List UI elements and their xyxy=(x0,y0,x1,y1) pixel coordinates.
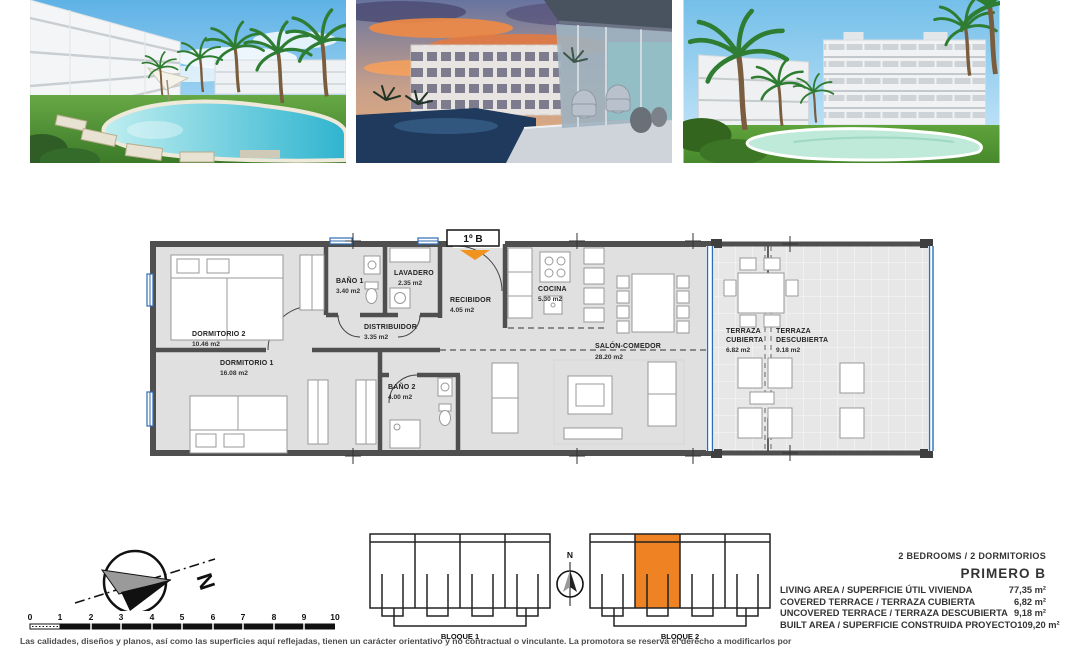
scale-bar-graphic xyxy=(30,624,335,630)
area-terraza-descubierta: 9.18 m2 xyxy=(776,347,801,354)
bloque2-footprint xyxy=(590,534,770,626)
spec-label: LIVING AREA / SUPERFICIE ÚTIL VIVIENDA xyxy=(780,585,972,597)
mini-compass-north-label: N xyxy=(567,550,573,560)
spec-row-uncovered: UNCOVERED TERRACE / TERRAZA DESCUBIERTA … xyxy=(780,608,1046,620)
scale-8: 8 xyxy=(272,612,277,622)
area-bano1: 3.40 m2 xyxy=(336,288,361,295)
north-compass: N xyxy=(20,545,350,611)
mini-compass: N xyxy=(557,550,583,606)
spec-row-covered: COVERED TERRACE / TERRAZA CUBIERTA 6,82 … xyxy=(780,597,1046,609)
area-dormitorio2: 10.46 m2 xyxy=(192,341,220,348)
photo-buildings-pool-art xyxy=(683,0,1000,163)
spec-row-built: BUILT AREA / SUPERFICIE CONSTRUIDA PROYE… xyxy=(780,620,1046,632)
photo-pool-daytime xyxy=(30,0,346,163)
brochure-page: 1º B DORMITORIO 2 10.46 m2 DORMITORIO 1 … xyxy=(0,0,1070,650)
spec-label: UNCOVERED TERRACE / TERRAZA DESCUBIERTA xyxy=(780,608,1008,620)
scale-4: 4 xyxy=(150,612,155,622)
scale-10: 10 xyxy=(330,612,340,622)
label-dormitorio1: DORMITORIO 1 xyxy=(220,360,274,367)
scale-0: 0 xyxy=(28,612,33,622)
highlighted-unit xyxy=(635,534,680,608)
scale-1: 1 xyxy=(58,612,63,622)
spec-row-living: LIVING AREA / SUPERFICIE ÚTIL VIVIENDA 7… xyxy=(780,585,1046,597)
spec-label: COVERED TERRACE / TERRAZA CUBIERTA xyxy=(780,597,975,609)
photo-pool-daytime-art xyxy=(30,0,346,163)
area-bano2: 4.00 m2 xyxy=(388,394,413,401)
label-terraza-descubierta-2: DESCUBIERTA xyxy=(776,337,828,344)
area-recibidor: 4.05 m2 xyxy=(450,307,475,314)
label-distribuidor: DISTRIBUIDOR xyxy=(364,324,417,331)
label-lavadero: LAVADERO xyxy=(394,270,434,277)
unit-name: PRIMERO B xyxy=(780,566,1046,581)
bloque1-footprint xyxy=(370,534,550,626)
compass-north-label: N xyxy=(191,570,220,593)
spec-label: BUILT AREA / SUPERFICIE CONSTRUIDA PROYE… xyxy=(780,620,1017,632)
unit-specs: 2 BEDROOMS / 2 DORMITORIOS PRIMERO B LIV… xyxy=(780,551,1046,631)
scale-9: 9 xyxy=(302,612,307,622)
area-lavadero: 2.35 m2 xyxy=(398,280,423,287)
area-distribuidor: 3.35 m2 xyxy=(364,334,389,341)
area-cocina: 5.30 m2 xyxy=(538,296,563,303)
label-terraza-cubierta-2: CUBIERTA xyxy=(726,337,763,344)
label-terraza-cubierta-1: TERRAZA xyxy=(726,328,761,335)
bedrooms-line: 2 BEDROOMS / 2 DORMITORIOS xyxy=(780,551,1046,561)
photo-buildings-pool xyxy=(683,0,1000,163)
scale-3: 3 xyxy=(119,612,124,622)
legal-disclaimer: Las calidades, diseños y planos, así com… xyxy=(20,636,1065,646)
label-terraza-descubierta-1: TERRAZA xyxy=(776,328,811,335)
scale-numbers: 0 1 2 3 4 5 6 7 8 9 10 xyxy=(28,612,340,622)
scale-7: 7 xyxy=(241,612,246,622)
photo-terrace-sunset-art xyxy=(356,0,672,163)
label-recibidor: RECIBIDOR xyxy=(450,297,491,304)
label-dormitorio2: DORMITORIO 2 xyxy=(192,331,246,338)
spec-value: 9,18 m² xyxy=(1014,608,1046,620)
area-terraza-cubierta: 6.82 m2 xyxy=(726,347,751,354)
scale-2: 2 xyxy=(89,612,94,622)
label-bano2: BAÑO 2 xyxy=(388,382,416,391)
area-dormitorio1: 16.08 m2 xyxy=(220,370,248,377)
area-salon: 28.20 m2 xyxy=(595,354,623,361)
scale-5: 5 xyxy=(180,612,185,622)
block-diagrams: BLOQUE 1 N BLOQUE 2 xyxy=(360,528,780,645)
label-salon: SALÓN-COMEDOR xyxy=(595,341,661,350)
spec-value: 109,20 m² xyxy=(1017,620,1059,632)
label-cocina: COCINA xyxy=(538,286,567,293)
photo-terrace-sunset xyxy=(356,0,672,163)
floor-plan: 1º B DORMITORIO 2 10.46 m2 DORMITORIO 1 … xyxy=(140,228,950,465)
label-bano1: BAÑO 1 xyxy=(336,276,364,285)
spec-value: 77,35 m² xyxy=(1009,585,1046,597)
unit-tag-label: 1º B xyxy=(463,234,482,245)
scale-6: 6 xyxy=(211,612,216,622)
spec-value: 6,82 m² xyxy=(1014,597,1046,609)
